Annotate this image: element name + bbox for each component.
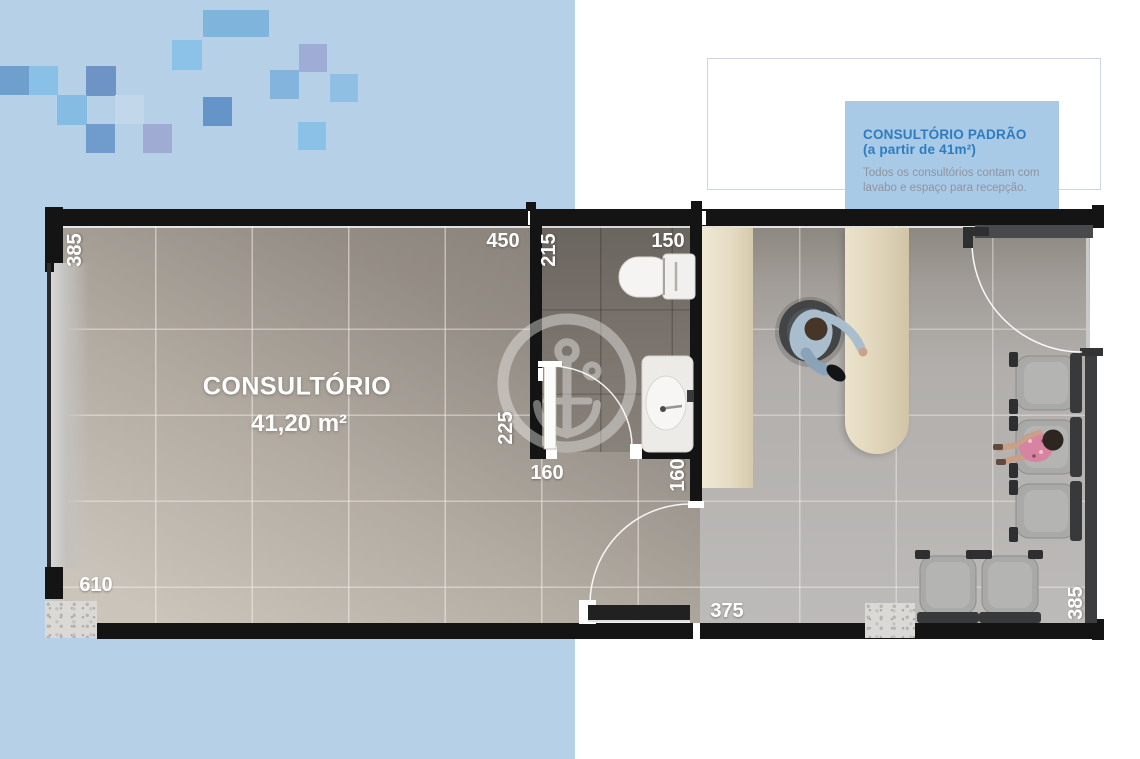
wall-end-cap-white bbox=[630, 444, 642, 459]
wall-end-cap-white bbox=[688, 501, 704, 508]
decor-square bbox=[298, 122, 326, 150]
page: CONSULTÓRIO PADRÃO (a partir de 41m²) To… bbox=[0, 0, 1140, 759]
decor-square bbox=[86, 124, 115, 153]
decor-square bbox=[86, 66, 116, 96]
terrazzo-block-right bbox=[865, 603, 915, 638]
decor-squares-layer bbox=[0, 0, 575, 200]
room-area-label: 41,20 m² bbox=[251, 410, 347, 438]
decor-square bbox=[143, 124, 172, 153]
window-mullion-line bbox=[47, 263, 51, 568]
decor-square bbox=[29, 66, 58, 95]
wall-end-cap-white bbox=[546, 446, 557, 459]
right-wall-connector bbox=[1080, 348, 1103, 356]
window-glass-strip bbox=[51, 263, 89, 568]
room-name-label: CONSULTÓRIO bbox=[203, 373, 391, 402]
decor-square bbox=[330, 74, 358, 102]
top-wall-end-cap bbox=[1092, 205, 1104, 228]
bathroom-left-wall bbox=[530, 210, 542, 458]
info-title: CONSULTÓRIO PADRÃO bbox=[863, 127, 1059, 142]
info-subtitle: (a partir de 41m²) bbox=[863, 142, 1059, 157]
corner-block-bottom-left bbox=[45, 567, 63, 599]
wall-inner-highlight bbox=[51, 226, 1090, 228]
bathroom-right-wall bbox=[690, 210, 702, 507]
decor-square bbox=[115, 95, 144, 124]
reception-desk-right bbox=[845, 228, 909, 454]
top-wall bbox=[45, 209, 1103, 226]
decor-square bbox=[172, 40, 202, 70]
info-body-line2: lavabo e espaço para recepção. bbox=[863, 181, 1059, 196]
right-wall bbox=[1085, 350, 1097, 623]
info-body-line1: Todos os consultórios contam com bbox=[863, 166, 1059, 181]
reception-desk-left bbox=[702, 228, 753, 488]
bottom-wall bbox=[97, 623, 1103, 639]
decor-square bbox=[0, 66, 29, 95]
decor-square bbox=[203, 97, 232, 126]
corner-block-top-left bbox=[45, 207, 63, 263]
decor-square bbox=[270, 70, 299, 99]
bathroom-floor bbox=[530, 226, 702, 452]
entrance-side-line bbox=[1086, 237, 1089, 350]
terrazzo-block-left bbox=[45, 601, 97, 638]
decor-square bbox=[203, 10, 269, 37]
bathroom-bottom-wall-left bbox=[530, 446, 546, 459]
decor-square bbox=[57, 95, 87, 125]
info-card: CONSULTÓRIO PADRÃO (a partir de 41m²) To… bbox=[845, 101, 1059, 210]
decor-square bbox=[299, 44, 327, 72]
wall-joint-gap bbox=[693, 623, 700, 639]
